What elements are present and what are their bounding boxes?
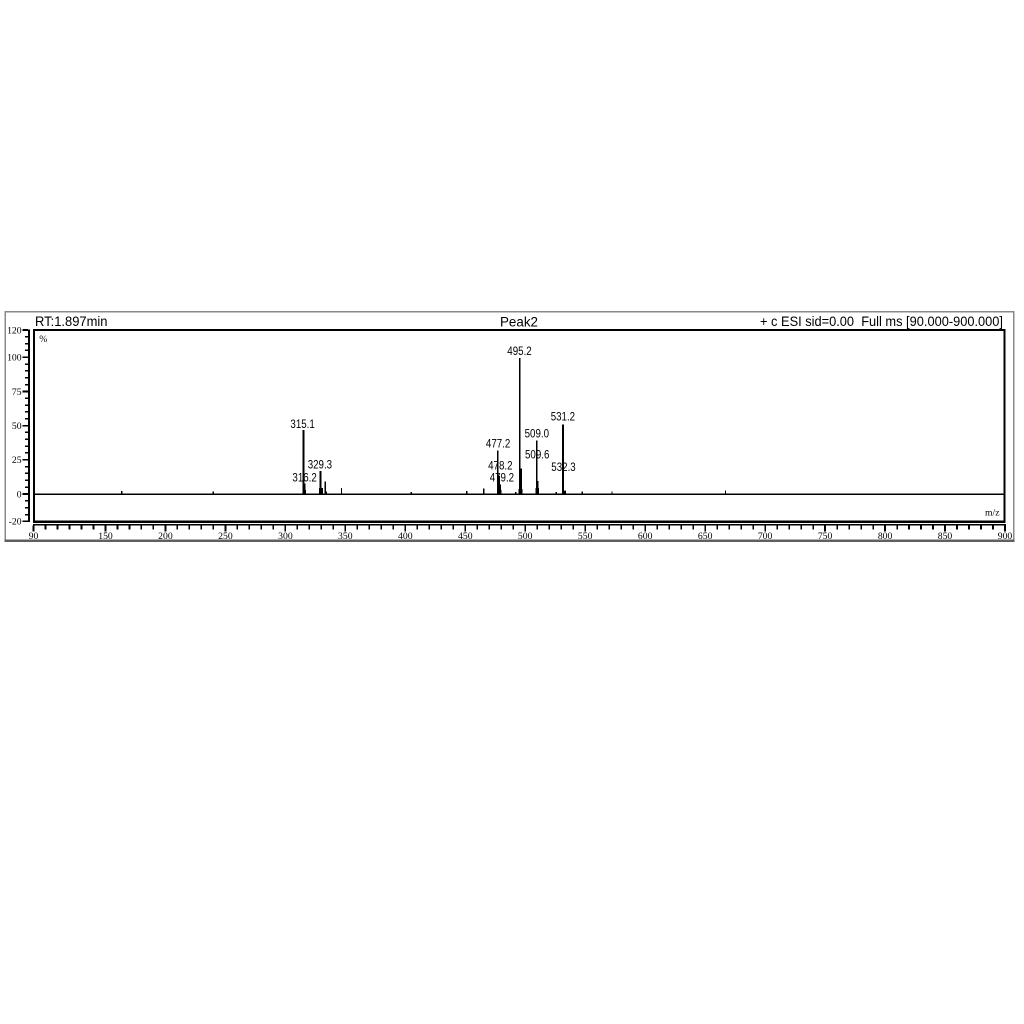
svg-text:329.3: 329.3 xyxy=(308,458,333,472)
svg-text:531.2: 531.2 xyxy=(551,409,576,423)
svg-text:900: 900 xyxy=(998,531,1013,542)
svg-text:100: 100 xyxy=(7,353,22,364)
svg-text:509.0: 509.0 xyxy=(525,426,550,440)
svg-text:%: % xyxy=(39,334,47,345)
svg-text:532.3: 532.3 xyxy=(551,460,576,474)
svg-text:75: 75 xyxy=(12,387,22,398)
svg-text:315.1: 315.1 xyxy=(290,417,315,431)
svg-text:200: 200 xyxy=(158,531,173,542)
svg-text:800: 800 xyxy=(878,531,893,542)
svg-text:50: 50 xyxy=(12,421,22,432)
svg-text:m/z: m/z xyxy=(985,508,1000,519)
svg-text:650: 650 xyxy=(698,531,713,542)
svg-text:450: 450 xyxy=(458,531,473,542)
svg-text:25: 25 xyxy=(12,455,22,466)
svg-text:0: 0 xyxy=(17,489,22,500)
svg-text:550: 550 xyxy=(578,531,593,542)
svg-text:300: 300 xyxy=(278,531,293,542)
svg-text:500: 500 xyxy=(518,531,533,542)
svg-text:850: 850 xyxy=(938,531,953,542)
svg-text:400: 400 xyxy=(398,531,413,542)
svg-text:90: 90 xyxy=(29,531,39,542)
svg-text:316.2: 316.2 xyxy=(292,470,317,484)
svg-text:477.2: 477.2 xyxy=(486,436,511,450)
svg-text:750: 750 xyxy=(818,531,833,542)
svg-text:Peak2: Peak2 xyxy=(500,314,538,330)
svg-text:RT:1.897min: RT:1.897min xyxy=(35,314,108,330)
svg-text:509.6: 509.6 xyxy=(525,448,550,462)
svg-text:495.2: 495.2 xyxy=(507,344,532,358)
svg-text:120: 120 xyxy=(7,325,22,336)
svg-text:-20: -20 xyxy=(9,517,22,528)
svg-text:350: 350 xyxy=(338,531,353,542)
svg-text:600: 600 xyxy=(638,531,653,542)
svg-text:+ c ESI sid=0.00 Full ms [90.: + c ESI sid=0.00 Full ms [90.000-900.000… xyxy=(760,314,1003,330)
svg-text:150: 150 xyxy=(98,531,113,542)
svg-text:250: 250 xyxy=(218,531,233,542)
svg-text:700: 700 xyxy=(758,531,773,542)
svg-text:479.2: 479.2 xyxy=(490,470,515,484)
